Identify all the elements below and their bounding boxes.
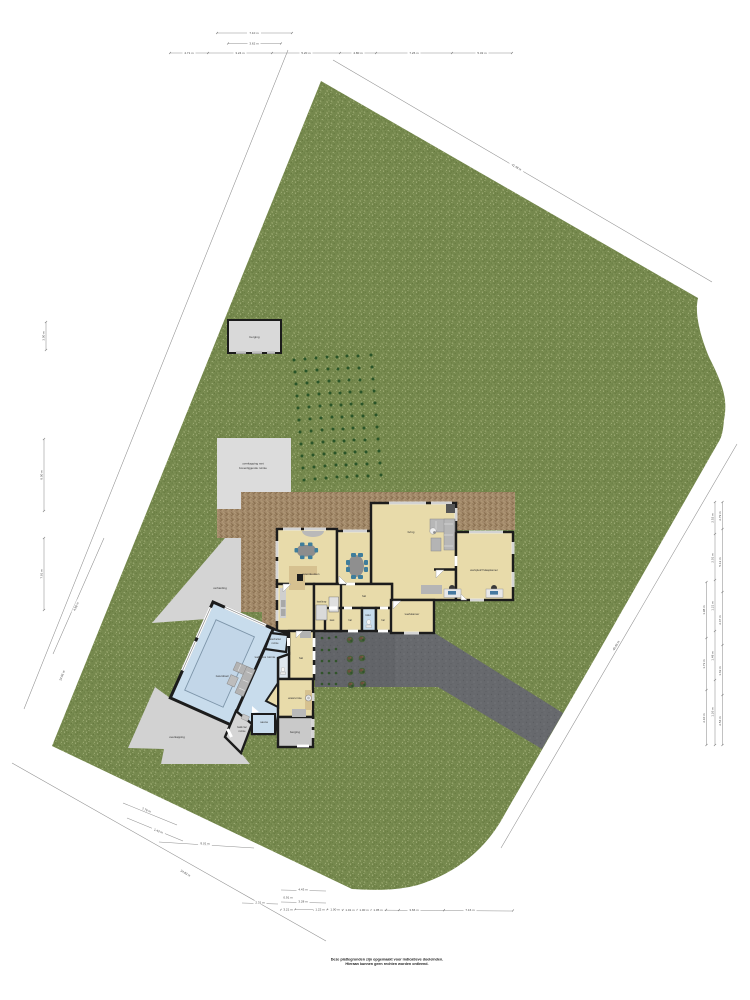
svg-text:Hieraan kunnen geen rechten wo: Hieraan kunnen geen rechten worden ontle… [345, 962, 428, 966]
svg-text:2.47 m: 2.47 m [718, 615, 722, 625]
svg-text:2.31 m: 2.31 m [255, 901, 265, 905]
svg-text:berging: berging [290, 730, 300, 734]
svg-text:1.00 m: 1.00 m [359, 908, 369, 912]
svg-text:4.43 m: 4.43 m [298, 888, 308, 892]
svg-text:7.16 m: 7.16 m [465, 908, 475, 912]
svg-text:8.01 m: 8.01 m [200, 841, 210, 846]
svg-text:werkkamer: werkkamer [405, 612, 420, 616]
svg-text:overkapping: overkapping [169, 735, 185, 739]
svg-text:3.21 m: 3.21 m [283, 908, 293, 912]
svg-text:2.54 m: 2.54 m [718, 716, 722, 726]
svg-text:werkplek?/slaapkamer: werkplek?/slaapkamer [470, 568, 498, 572]
svg-text:living: living [408, 530, 415, 534]
svg-text:3.28 m: 3.28 m [298, 900, 308, 904]
svg-text:bovenliggende ruimte: bovenliggende ruimte [239, 466, 267, 470]
svg-text:woonkeuken: woonkeuken [303, 572, 320, 576]
svg-text:1.01 m: 1.01 m [345, 908, 355, 912]
svg-text:1.22 m: 1.22 m [315, 908, 325, 912]
svg-text:3.24 m: 3.24 m [235, 51, 245, 55]
svg-text:kast: kast [330, 619, 335, 622]
svg-text:wasruimte: wasruimte [288, 696, 302, 700]
svg-text:2.52 m: 2.52 m [710, 513, 714, 523]
svg-text:kast/trap: kast/trap [317, 601, 327, 604]
svg-text:ruimte: ruimte [272, 642, 280, 645]
svg-text:2.01 m: 2.01 m [710, 553, 714, 563]
svg-text:4.71 m: 4.71 m [184, 51, 194, 55]
svg-text:badk./wc: badk./wc [237, 726, 248, 729]
svg-text:7.91 m: 7.91 m [40, 569, 44, 579]
svg-text:zwembad: zwembad [216, 674, 229, 678]
svg-text:8.00 m: 8.00 m [40, 470, 44, 480]
svg-text:ruimte: ruimte [239, 730, 247, 733]
svg-text:5.12 m: 5.12 m [718, 557, 722, 567]
svg-text:1.21 m: 1.21 m [710, 601, 714, 611]
svg-text:1.63 m: 1.63 m [718, 666, 722, 676]
svg-text:0.91 m: 0.91 m [283, 896, 293, 900]
svg-text:3.00 m: 3.00 m [42, 331, 46, 341]
svg-text:toilet: toilet [365, 614, 371, 617]
svg-text:2.79 m: 2.79 m [718, 511, 722, 521]
svg-text:1.73 m: 1.73 m [702, 659, 706, 669]
svg-text:4.80 m: 4.80 m [353, 51, 363, 55]
svg-text:berging: berging [249, 335, 259, 339]
svg-text:Deze plattegronden zijn opgema: Deze plattegronden zijn opgemaakt voor i… [331, 958, 444, 962]
svg-text:hal: hal [299, 656, 303, 660]
svg-text:1.26 m: 1.26 m [710, 707, 714, 717]
svg-text:7.26 m: 7.26 m [409, 51, 419, 55]
svg-text:3.66 m: 3.66 m [409, 908, 419, 912]
svg-text:sauna: sauna [260, 720, 268, 724]
svg-text:wellness ruimte: wellness ruimte [255, 655, 276, 659]
svg-text:2.10 m: 2.10 m [702, 713, 706, 723]
svg-text:1.98 m: 1.98 m [702, 605, 706, 615]
svg-text:1.48 m: 1.48 m [710, 651, 714, 661]
svg-text:3.62 m: 3.62 m [249, 42, 259, 46]
svg-text:1.00 m: 1.00 m [330, 908, 340, 912]
svg-text:overkapping met: overkapping met [242, 462, 264, 466]
svg-text:hal: hal [381, 619, 385, 622]
svg-text:douche/wc: douche/wc [269, 638, 282, 641]
svg-text:hal: hal [348, 619, 352, 622]
svg-text:5.32 m: 5.32 m [477, 51, 487, 55]
svg-text:7.10 m: 7.10 m [249, 31, 259, 35]
svg-text:1.05 m: 1.05 m [373, 908, 383, 912]
svg-text:hal: hal [362, 594, 366, 598]
svg-text:5.20 m: 5.20 m [301, 51, 311, 55]
svg-text:verharding: verharding [213, 586, 227, 590]
